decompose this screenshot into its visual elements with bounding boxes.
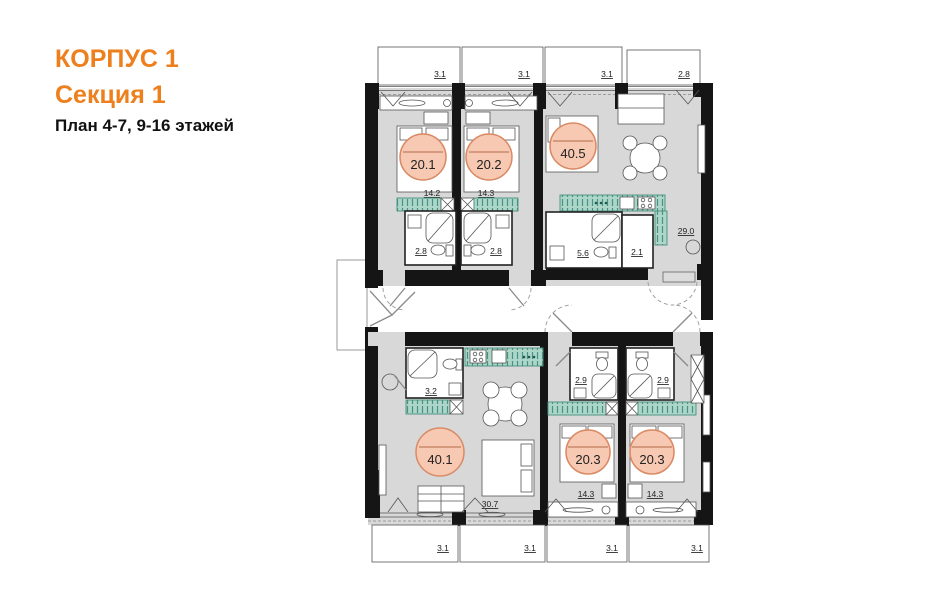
toilet-icon [594,247,608,257]
corridor-door-leaf [392,292,415,315]
stove-icon [470,350,486,363]
wall [365,245,378,288]
bathroom-area-label: 3.2 [425,386,437,396]
wall [697,264,707,280]
chair [623,136,637,150]
balcony-area-label: 3.1 [691,543,703,553]
toilet-icon [443,359,457,369]
appliance [466,112,490,124]
upper-section: 3.1 3.1 3.1 2.8 [365,47,713,320]
washbasin-icon [496,215,509,228]
door-leaf [390,288,405,306]
room-area-label: 14.3 [647,489,664,499]
balcony-area-label: 3.1 [524,543,536,553]
room-area-label: 14.2 [424,188,441,198]
balcony-area-label: 3.1 [518,69,530,79]
bathroom-area-label: 2.8 [415,246,427,256]
chair [623,166,637,180]
washbasin-icon [574,388,586,398]
toilet-tank [609,247,616,258]
apartment-area: 20.1 [410,157,435,172]
bathroom-area-label: 5.6 [577,248,589,258]
toilet-icon [597,358,608,371]
sink-icon [492,350,506,363]
kitchen-counter [465,96,537,110]
wall [405,332,545,346]
room-area-label: 14.3 [478,188,495,198]
wardrobe [406,400,450,414]
mirror [379,445,386,495]
apartment-area: 20.3 [575,452,600,467]
floorplan-canvas: КОРПУС 1 Секция 1 План 4-7, 9-16 этажей … [0,0,941,600]
wall [405,270,509,286]
washbasin-icon [449,383,461,395]
bathroom-area-label: 2.9 [657,375,669,385]
appliance [424,112,448,124]
wardrobe [397,198,441,211]
apartment-area: 40.5 [560,146,585,161]
chair [483,410,499,426]
washbasin-icon [408,215,421,228]
window-slit [703,462,710,492]
pillow [521,470,532,492]
sofa [618,94,664,124]
toilet-tank [446,245,453,256]
bathroom-area-label: 2.9 [575,375,587,385]
room-area-label: 14.3 [578,489,595,499]
door-leaf [509,288,524,306]
washbasin-icon [658,388,670,398]
apartment-area: 20.2 [476,157,501,172]
wardrobe [474,198,518,211]
balcony-area-label: 2.8 [678,69,690,79]
corridor-door-leaf [370,291,392,326]
balcony [627,50,700,85]
entry-door [663,272,695,282]
toilet-tank [464,245,471,256]
floorplan-drawing: 3.1 3.1 3.1 2.8 [0,0,941,600]
wall [533,510,547,526]
chair [653,136,667,150]
washbasin-icon [550,246,564,260]
wall [693,83,713,97]
balcony-area-label: 3.1 [434,69,446,79]
bathroom-area-label: 2.8 [490,246,502,256]
wardrobe [655,211,667,245]
wall-party [618,332,626,525]
nightstand [628,484,642,498]
window-slit [698,125,705,173]
wall-party [534,100,543,277]
nightstand [602,484,616,498]
wall [531,270,546,286]
balcony-area-label: 3.1 [601,69,613,79]
toilet-icon [637,358,648,371]
wall [365,83,379,109]
wardrobe [548,402,606,415]
balcony [462,47,543,85]
toilet-icon [431,245,445,255]
balcony-area-label: 3.1 [437,543,449,553]
wall [452,510,466,526]
wc-room [622,215,653,268]
balcony-area-label: 3.1 [606,543,618,553]
apartment-area: 20.3 [639,452,664,467]
sink-icon [620,197,634,209]
living-area-label: 29.0 [678,226,695,236]
toilet-icon [471,245,485,255]
chair [653,166,667,180]
balcony [545,47,622,85]
vent-shaft [691,355,704,403]
lower-section: 3.2 [365,332,713,562]
wardrobe [638,402,696,415]
door-leaf [673,313,692,332]
elevator-shaft [337,260,367,350]
door-leaf [553,313,572,332]
chair [511,382,527,398]
chair [511,410,527,426]
wall [365,470,380,518]
kitchen-counter [548,502,618,517]
chair [483,382,499,398]
pillow [521,444,532,466]
stove-icon [638,197,655,209]
kitchen-counter [626,502,696,517]
wc-area-label: 2.1 [631,247,643,257]
balcony [378,47,460,85]
apartment-area: 40.1 [427,452,452,467]
